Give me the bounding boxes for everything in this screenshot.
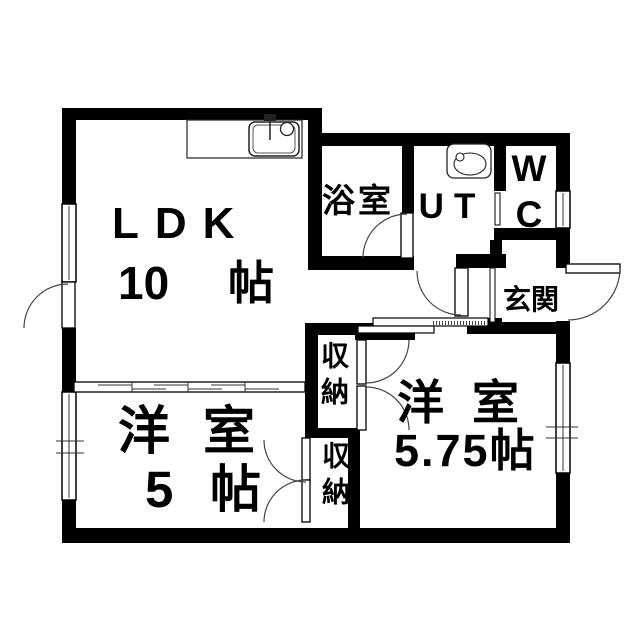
room-label-utility: UT [412, 189, 492, 224]
room-area-bedroom-left: 5 帖 [145, 464, 261, 515]
washbasin-icon [447, 144, 491, 178]
room-label-ldk: LDK [112, 202, 250, 246]
wall-left-3 [62, 500, 76, 528]
door-arc-entrance [568, 268, 620, 320]
wall-bottom [62, 528, 570, 543]
door-leaf-closet-upper-1 [357, 340, 366, 384]
room-label-entrance: 玄関 [500, 286, 562, 314]
wall-bath-bottom [308, 256, 408, 270]
wc-label-bottom: C [504, 196, 554, 233]
wall-ldk-slide-stub [305, 379, 318, 397]
wall-left-1 [62, 108, 76, 204]
floor-plan-drawing [0, 0, 639, 640]
room-label-bathroom: 浴室 [312, 184, 404, 217]
floor-plan: LDK 10 帖 浴室 UT W C 玄関 収納 収納 洋室 5 帖 洋室 5.… [0, 0, 639, 640]
room-label-bedroom-right: 洋室 [397, 379, 547, 426]
door-arc-closet-lower-2 [264, 480, 306, 522]
room-area-bedroom-right: 5.75帖 [394, 428, 537, 473]
wall-entrance-stub [490, 240, 502, 268]
room-label-toilet: W C [504, 150, 554, 233]
bedroom-left-area-unit: 帖 [210, 464, 261, 515]
sliding-door-hatch [432, 319, 487, 325]
wall-right-4 [556, 473, 570, 528]
wall-top-bath-block [308, 133, 570, 146]
room-label-bedroom-left: 洋室 [118, 406, 288, 458]
wc-label-top: W [504, 150, 554, 187]
wall-between-closets [305, 428, 360, 438]
ldk-area-unit: 帖 [228, 260, 274, 306]
wc-door [495, 193, 500, 225]
wall-right-1 [556, 133, 570, 191]
bedroom-left-area-value: 5 [145, 464, 173, 515]
sliding-partition-ldk [74, 382, 305, 392]
entrance-step-line [490, 268, 495, 322]
walls [62, 108, 570, 543]
kitchen-sink-icon [187, 114, 302, 158]
sliding-door-hall-panel2 [358, 326, 434, 333]
door-leaf-utility [455, 268, 468, 316]
room-area-ldk: 10 帖 [118, 260, 274, 306]
room-label-closet-lower: 収納 [320, 441, 348, 525]
door-leaf-closet-lower-2 [302, 480, 310, 522]
door-leaf-entrance [566, 264, 620, 273]
door-leaf-closet-lower-1 [302, 438, 310, 480]
ldk-area-value: 10 [118, 260, 169, 306]
door-leaf-ldk-exterior [62, 282, 75, 328]
door-leaf-closet-upper-2 [357, 386, 366, 430]
room-label-closet-upper: 収納 [319, 341, 347, 425]
